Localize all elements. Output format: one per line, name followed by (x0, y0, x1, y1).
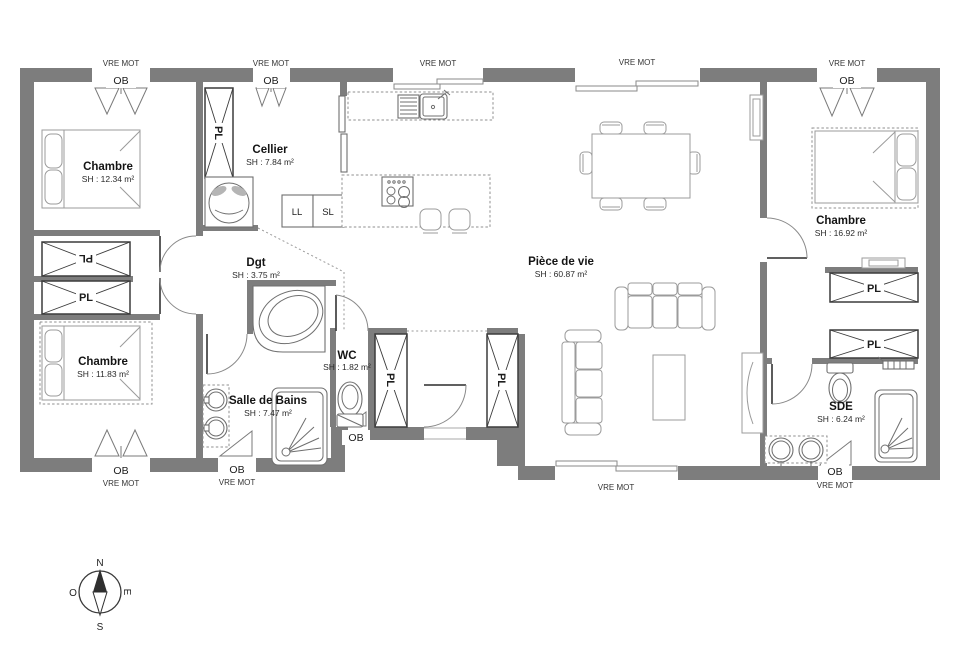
window-living-bottom: VRE MOT (556, 461, 677, 492)
closet-dressing-bottom: PL (830, 330, 918, 358)
window-kitchen: VRE MOT (394, 59, 483, 89)
window-label-vre: VRE MOT (103, 479, 140, 488)
window-label-ob: OB (348, 432, 363, 444)
sofa-icon (615, 283, 715, 330)
window-label-vre: VRE MOT (598, 483, 635, 492)
window-chamber3: VRE MOT OB (820, 59, 874, 116)
room-name: Salle de Bains (229, 395, 307, 407)
door-chamber3 (767, 218, 807, 258)
window-cellier: VRE MOT OB (253, 59, 290, 106)
room-area: SH : 7.84 m² (246, 157, 294, 167)
door-chamber2 (160, 278, 196, 314)
exterior-walls (20, 68, 940, 480)
water-heater-icon (205, 177, 253, 227)
chair-icon (580, 152, 592, 174)
closet-dressing-top: PL (830, 273, 918, 302)
room-name: Chambre (816, 215, 866, 227)
room-label-sde: SDE SH : 6.24 m² (817, 401, 865, 424)
coffee-table-icon (653, 355, 685, 420)
door-bathroom (207, 334, 247, 374)
compass-east: E (121, 589, 132, 596)
bathtub-icon (251, 280, 332, 353)
chair-icon (600, 198, 622, 210)
kitchen-counter (348, 90, 493, 120)
compass-north: N (96, 558, 103, 569)
closet-label: PL (867, 283, 881, 295)
bathroom-basins (203, 385, 229, 447)
window-living-top: VRE MOT (576, 58, 698, 91)
closet-entrance-right: PL (487, 334, 518, 427)
door-wc (336, 295, 368, 331)
compass-west: O (69, 588, 77, 599)
door-chamber1 (160, 236, 196, 272)
floor-plan-drawing: VRE MOT OB VRE MOT OB VRE MOT VRE MOT (0, 0, 960, 653)
toilet-sde-icon (827, 363, 853, 403)
compass-south: S (97, 622, 104, 633)
door-cellier-slider (339, 96, 347, 172)
console-icon (862, 258, 905, 268)
chair-icon (644, 122, 666, 134)
room-area: SH : 6.24 m² (817, 414, 865, 424)
cupboard-icon (750, 95, 763, 140)
window-label-vre: VRE MOT (420, 59, 457, 68)
hob-icon (382, 177, 413, 208)
sde-basins (765, 436, 827, 466)
chair-icon (600, 122, 622, 134)
compass-icon: N S O E (69, 558, 132, 633)
room-label-chambre-3: Chambre SH : 16.92 m² (815, 215, 868, 238)
room-name: WC (337, 350, 356, 362)
window-label-vre: VRE MOT (829, 59, 866, 68)
floor-plan: VRE MOT OB VRE MOT OB VRE MOT VRE MOT (0, 0, 960, 653)
room-area: SH : 1.82 m² (323, 362, 371, 372)
window-label-ob: OB (229, 464, 244, 476)
window-label-vre: VRE MOT (219, 478, 256, 487)
closet-label: PL (212, 126, 224, 140)
window-label-vre: VRE MOT (817, 481, 854, 490)
stool-icon (449, 209, 470, 233)
room-area: SH : 16.92 m² (815, 228, 868, 238)
closet-label: PL (79, 252, 93, 264)
interior-walls (33, 82, 918, 472)
window-chamber1: VRE MOT OB (95, 59, 147, 114)
window-label-vre: VRE MOT (103, 59, 140, 68)
bed-icon (812, 128, 918, 208)
door-entrance (424, 385, 466, 440)
room-name: Chambre (83, 161, 133, 173)
washing-machine-label: LL (292, 207, 303, 218)
window-chamber2: OB VRE MOT (95, 430, 147, 488)
closet-entrance-left: PL (375, 334, 407, 427)
closet-label: PL (79, 292, 93, 304)
room-label-cellier: Cellier SH : 7.84 m² (246, 144, 294, 167)
room-name: Pièce de vie (528, 256, 594, 268)
window-label-ob: OB (263, 75, 278, 87)
kitchen-island (342, 175, 490, 233)
room-label-chambre-1: Chambre SH : 12.34 m² (82, 161, 135, 184)
room-area: SH : 7.47 m² (244, 408, 292, 418)
closet-chamber1: PL (42, 242, 130, 276)
room-label-piece-de-vie: Pièce de vie SH : 60.87 m² (528, 256, 594, 279)
room-name: Cellier (252, 144, 288, 156)
stool-icon (420, 209, 441, 233)
window-label-ob: OB (113, 75, 128, 87)
room-label-chambre-2: Chambre SH : 11.83 m² (77, 356, 129, 379)
dining-table-icon (580, 122, 700, 210)
room-area: SH : 3.75 m² (232, 270, 280, 280)
dryer-label: SL (322, 207, 334, 218)
window-label-ob: OB (827, 466, 842, 478)
room-name: Dgt (246, 257, 265, 269)
closet-label: PL (384, 373, 396, 387)
tv-cabinet-icon (742, 353, 763, 433)
toilet-wc-icon (337, 382, 363, 427)
closet-cellier: PL (205, 88, 233, 178)
chair-icon (644, 198, 666, 210)
washing-machine-icon: LL (282, 195, 313, 227)
window-label-ob: OB (839, 75, 854, 87)
shower-sde-icon (875, 390, 917, 462)
window-label-vre: VRE MOT (253, 59, 290, 68)
window-label-vre: VRE MOT (619, 58, 656, 67)
window-label-ob: OB (113, 465, 128, 477)
room-area: SH : 60.87 m² (535, 269, 588, 279)
room-name: SDE (829, 401, 853, 413)
closet-chamber2: PL (42, 281, 130, 314)
room-area: SH : 12.34 m² (82, 174, 135, 184)
furniture (40, 95, 918, 435)
closet-label: PL (495, 373, 507, 387)
room-name: Chambre (78, 356, 128, 368)
closet-label: PL (867, 339, 881, 351)
dryer-icon: SL (313, 195, 344, 227)
sofa-icon (562, 330, 602, 435)
room-label-dgt: Dgt SH : 3.75 m² (232, 257, 280, 280)
room-area: SH : 11.83 m² (77, 369, 129, 379)
door-sde (772, 364, 812, 404)
